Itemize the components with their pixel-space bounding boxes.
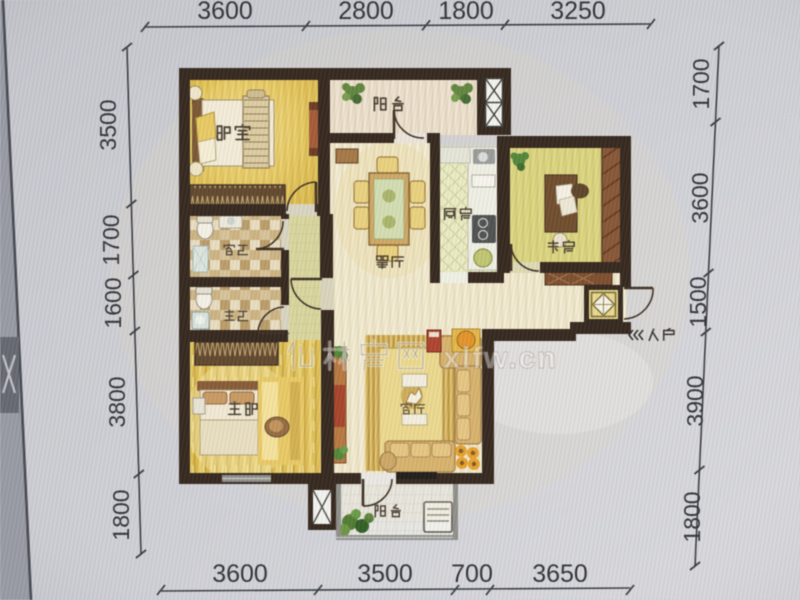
svg-text:1500: 1500 (685, 276, 711, 327)
svg-text:1800: 1800 (438, 0, 494, 25)
svg-text:1800: 1800 (679, 491, 705, 542)
svg-text:1700: 1700 (688, 58, 714, 109)
svg-text:700: 700 (451, 560, 493, 588)
svg-text:3900: 3900 (682, 375, 708, 426)
svg-text:3600: 3600 (212, 560, 268, 588)
svg-text:1600: 1600 (100, 277, 126, 328)
svg-text:3250: 3250 (550, 0, 606, 25)
svg-text:3500: 3500 (95, 99, 121, 150)
svg-text:1800: 1800 (108, 489, 134, 540)
svg-text:1700: 1700 (98, 214, 124, 265)
svg-text:3600: 3600 (197, 0, 253, 25)
svg-text:3600: 3600 (687, 172, 713, 223)
svg-text:xlfw.cn: xlfw.cn (443, 340, 557, 375)
svg-text:3800: 3800 (104, 376, 130, 427)
svg-text:2800: 2800 (338, 0, 394, 25)
svg-text:3500: 3500 (357, 560, 413, 588)
svg-text:3650: 3650 (532, 560, 588, 588)
